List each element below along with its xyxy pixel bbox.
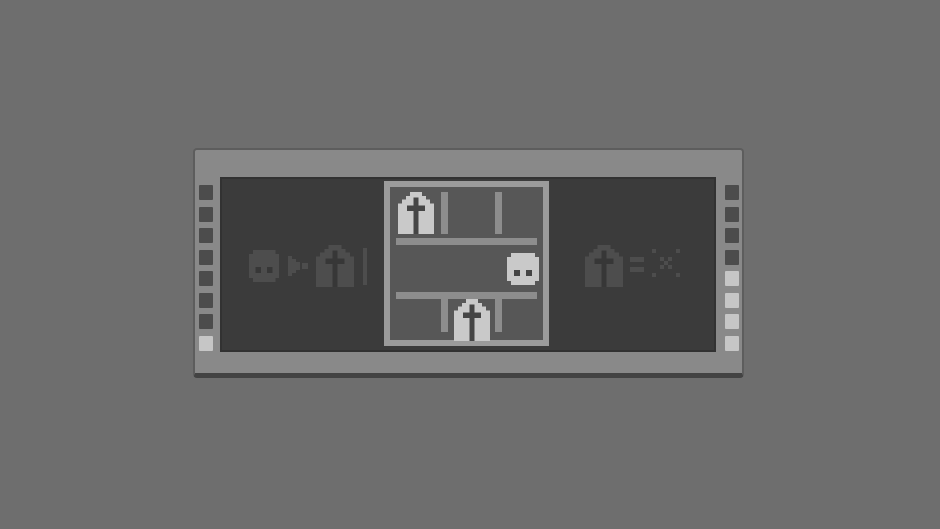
board-cell-r2c2[interactable]: [502, 299, 543, 340]
progress-pip: [199, 314, 213, 329]
puzzle-panel: [220, 177, 716, 352]
board-cell-r0c2[interactable]: [502, 187, 543, 238]
progress-pip: [199, 207, 213, 222]
chapel-icon: [454, 299, 490, 341]
progress-pip: [199, 336, 213, 351]
grid-wall-h-bottom: [396, 292, 537, 299]
progress-pip: [725, 271, 739, 286]
progress-pip: [199, 293, 213, 308]
rule-statement: [249, 245, 367, 287]
board-cell-r0c1[interactable]: [448, 187, 495, 238]
progress-strip-right: [725, 150, 739, 373]
progress-pip: [725, 228, 739, 243]
board-cell-r0c0[interactable]: [390, 187, 441, 238]
progress-pip: [199, 228, 213, 243]
grid-wall-v-right-top: [495, 192, 502, 234]
progress-pip: [725, 293, 739, 308]
progress-pip: [725, 250, 739, 265]
puzzle-dialog: [193, 148, 744, 378]
board-cell-r1c1[interactable]: [448, 245, 495, 292]
equals-icon: [630, 257, 644, 272]
progress-pip: [725, 185, 739, 200]
grid-wall-v-right-bottom: [495, 299, 502, 332]
chapel-icon: [316, 245, 354, 287]
progress-pip: [725, 207, 739, 222]
progress-strip-left: [199, 150, 213, 373]
robot-face-icon: [507, 253, 539, 285]
progress-pip: [725, 314, 739, 329]
board-cell-r2c0[interactable]: [390, 299, 441, 340]
play-arrow-icon: [288, 254, 308, 278]
board-cell-r1c0[interactable]: [390, 245, 441, 292]
grid-wall-h-top: [396, 238, 537, 245]
robot-face-icon: [249, 250, 279, 282]
chapel-icon: [585, 245, 623, 287]
board-cell-r1c2[interactable]: [502, 245, 543, 292]
progress-pip: [199, 271, 213, 286]
progress-pip: [199, 185, 213, 200]
x-mark-icon: [652, 249, 680, 277]
rule-legend: [585, 245, 681, 287]
board-cell-r2c1[interactable]: [448, 299, 495, 340]
screen: [0, 0, 940, 529]
chapel-icon: [398, 192, 434, 234]
progress-pip: [725, 336, 739, 351]
grid-wall-v-left-top: [441, 192, 448, 234]
puzzle-board: [384, 181, 549, 346]
cursor-bar-icon: [363, 248, 367, 285]
grid-wall-v-left-bottom: [441, 299, 448, 332]
progress-pip: [199, 250, 213, 265]
